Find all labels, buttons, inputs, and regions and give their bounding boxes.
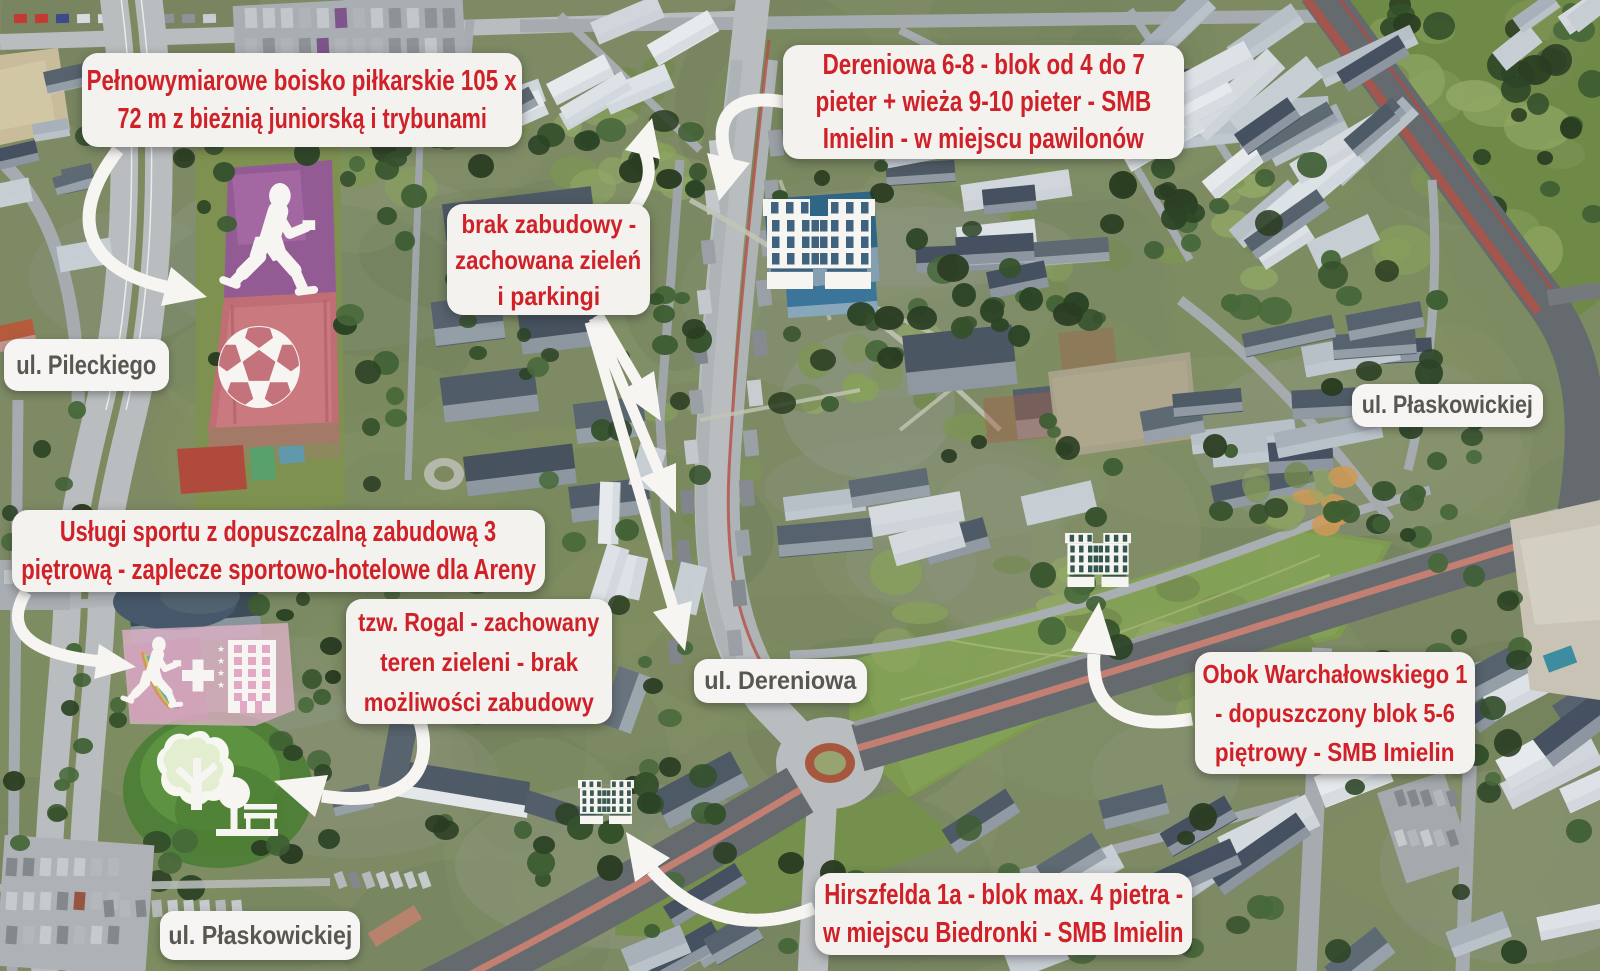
svg-text:★: ★ <box>217 680 225 690</box>
svg-text:★: ★ <box>217 668 225 678</box>
svg-text:★: ★ <box>217 644 225 654</box>
svg-text:★: ★ <box>217 656 225 666</box>
